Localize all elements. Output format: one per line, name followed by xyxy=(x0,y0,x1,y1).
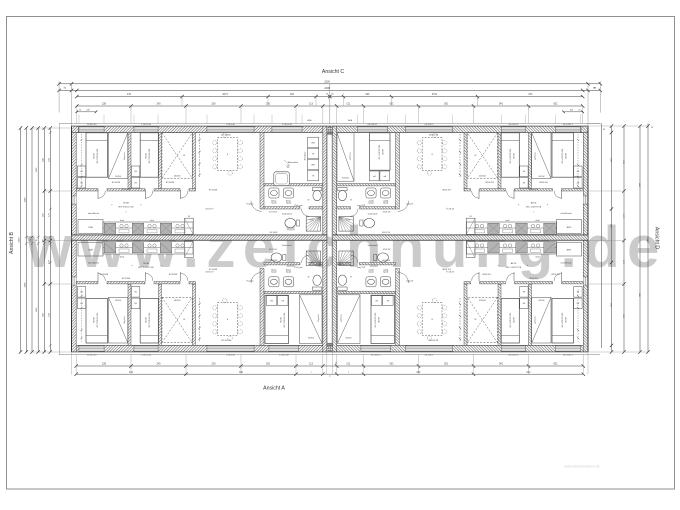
svg-text:1.135/1.40: 1.135/1.40 xyxy=(87,124,98,126)
svg-text:Essplatz: Essplatz xyxy=(406,203,413,206)
svg-text:BOTTICELLI 590: BOTTICELLI 590 xyxy=(149,149,151,164)
svg-text:BOTTICELLI 590: BOTTICELLI 590 xyxy=(374,313,376,328)
svg-text:113: 113 xyxy=(346,103,350,106)
svg-text:26.81 m²: 26.81 m² xyxy=(206,271,214,274)
svg-text:Spüle: Spüle xyxy=(535,256,539,258)
svg-text:240: 240 xyxy=(157,363,162,366)
svg-text:200: 200 xyxy=(266,363,271,366)
svg-text:Spüle: Spüle xyxy=(120,256,124,258)
svg-text:90/200: 90/200 xyxy=(346,338,352,340)
svg-text:Spüle: Spüle xyxy=(120,220,124,222)
svg-text:NOVA: NOVA xyxy=(93,153,96,159)
svg-text:EX 30/48: EX 30/48 xyxy=(270,232,277,234)
svg-text:140/200: 140/200 xyxy=(479,176,486,178)
svg-text:Spiegel: Spiegel xyxy=(368,272,374,274)
svg-text:90/200: 90/200 xyxy=(115,300,121,302)
svg-text:50: 50 xyxy=(651,127,653,129)
svg-text:1073: 1073 xyxy=(431,93,437,96)
svg-text:1125: 1125 xyxy=(36,307,38,312)
svg-text:2208: 2208 xyxy=(324,87,330,90)
svg-text:90/200: 90/200 xyxy=(308,338,314,340)
svg-text:90/200: 90/200 xyxy=(115,176,121,178)
svg-text:EX 30/48: EX 30/48 xyxy=(529,278,538,280)
svg-text:1.135/1.40: 1.135/1.40 xyxy=(367,124,378,126)
svg-text:140/200: 140/200 xyxy=(342,178,349,180)
svg-text:90/90: 90/90 xyxy=(309,262,314,264)
svg-text:EX 30/56: EX 30/56 xyxy=(383,249,390,251)
svg-text:20: 20 xyxy=(335,363,337,365)
svg-text:140/200: 140/200 xyxy=(479,300,486,302)
svg-text:240: 240 xyxy=(498,363,503,366)
svg-text:PVC grau: PVC grau xyxy=(294,204,302,207)
svg-text:BOTTICELLI 590: BOTTICELLI 590 xyxy=(509,313,511,328)
svg-text:1073: 1073 xyxy=(222,93,228,96)
svg-text:50: 50 xyxy=(79,110,81,112)
svg-text:18: 18 xyxy=(475,319,477,321)
svg-text:EX 80/58: EX 80/58 xyxy=(485,182,494,184)
svg-text:2.26/1.40: 2.26/1.40 xyxy=(424,355,434,357)
svg-text:1.135/1.40: 1.135/1.40 xyxy=(562,124,573,126)
svg-text:228: 228 xyxy=(86,110,89,112)
svg-text:200: 200 xyxy=(443,363,448,366)
svg-text:2WB: 2WB xyxy=(88,227,93,229)
svg-text:390: 390 xyxy=(239,371,244,374)
svg-text:26.81 m²: 26.81 m² xyxy=(446,271,454,274)
svg-text:Spiegel: Spiegel xyxy=(271,272,277,274)
svg-text:EX 40/196: EX 40/196 xyxy=(428,340,438,342)
svg-text:1080: 1080 xyxy=(24,197,26,203)
svg-text:www.zeichenaktion.de: www.zeichenaktion.de xyxy=(564,465,600,469)
svg-text:NOVA: NOVA xyxy=(564,317,567,323)
svg-text:BOTTICELLI 590: BOTTICELLI 590 xyxy=(284,313,286,328)
svg-text:2.26/1.40: 2.26/1.40 xyxy=(226,355,236,357)
svg-text:EX 80/58: EX 80/58 xyxy=(169,274,178,276)
svg-text:36: 36 xyxy=(331,94,333,96)
svg-text:PVC grau: PVC grau xyxy=(294,266,302,269)
svg-text:EX 30/48: EX 30/48 xyxy=(442,269,451,271)
svg-text:BOTTICELLI 590: BOTTICELLI 590 xyxy=(561,313,563,328)
svg-text:Spiegel: Spiegel xyxy=(286,202,292,204)
svg-text:BOTTICELLI 590: BOTTICELLI 590 xyxy=(378,145,380,160)
svg-text:200: 200 xyxy=(443,103,448,106)
svg-text:EX 30/48: EX 30/48 xyxy=(122,189,131,191)
svg-text:Klappbett: Klappbett xyxy=(534,316,537,324)
svg-text:Spüle: Spüle xyxy=(535,220,539,222)
svg-text:7: 7 xyxy=(533,212,534,214)
svg-text:26.81 m²: 26.81 m² xyxy=(446,208,454,211)
svg-text:abstellfläche: abstellfläche xyxy=(88,212,100,215)
svg-text:1.135/1.40: 1.135/1.40 xyxy=(508,124,519,126)
svg-text:NOVA: NOVA xyxy=(93,317,96,323)
svg-text:1125: 1125 xyxy=(36,167,38,172)
svg-text:140/200: 140/200 xyxy=(174,176,181,178)
svg-text:470: 470 xyxy=(127,93,132,96)
svg-text:240: 240 xyxy=(157,103,162,106)
svg-text:Herd: Herd xyxy=(150,219,154,222)
svg-text:228: 228 xyxy=(570,110,573,112)
svg-text:Klappbett: Klappbett xyxy=(349,152,352,160)
svg-text:Bodenablauf: Bodenablauf xyxy=(367,214,377,216)
svg-text:240: 240 xyxy=(498,103,503,106)
svg-text:Klappbett: Klappbett xyxy=(534,152,537,160)
svg-text:18: 18 xyxy=(475,155,477,157)
svg-text:2240: 2240 xyxy=(646,238,648,244)
svg-text:18: 18 xyxy=(183,319,185,321)
svg-text:90/200: 90/200 xyxy=(539,300,545,302)
svg-text:410: 410 xyxy=(526,371,531,374)
svg-text:NOVA: NOVA xyxy=(377,317,380,323)
svg-text:NOVA: NOVA xyxy=(530,202,536,205)
svg-text:EX 40/196: EX 40/196 xyxy=(221,340,231,342)
svg-text:140/200: 140/200 xyxy=(174,300,181,302)
svg-text:NOVA: NOVA xyxy=(123,202,129,205)
svg-text:1.135/1.40: 1.135/1.40 xyxy=(562,355,573,357)
svg-text:320: 320 xyxy=(365,93,370,96)
svg-text:2238: 2238 xyxy=(324,81,330,84)
svg-text:2WB: 2WB xyxy=(566,227,571,229)
svg-text:1.135/1.40: 1.135/1.40 xyxy=(508,355,519,357)
svg-text:Spiegel: Spiegel xyxy=(368,202,374,204)
svg-text:7: 7 xyxy=(343,94,344,96)
svg-text:abstellfläche: abstellfläche xyxy=(560,212,572,215)
svg-text:EX 30/48: EX 30/48 xyxy=(270,260,277,262)
svg-text:EX 80/58: EX 80/58 xyxy=(482,274,491,276)
svg-text:PVC grau: PVC grau xyxy=(357,204,365,207)
svg-text:200: 200 xyxy=(212,103,217,106)
svg-text:EX 30/48: EX 30/48 xyxy=(209,269,218,271)
svg-text:Bodenablauf: Bodenablauf xyxy=(367,245,377,247)
svg-text:228: 228 xyxy=(553,103,558,106)
svg-text:Klappbett: Klappbett xyxy=(317,314,320,322)
svg-text:Klappbett: Klappbett xyxy=(123,316,126,324)
svg-text:18: 18 xyxy=(183,155,185,157)
svg-text:Klappbett: Klappbett xyxy=(123,152,126,160)
svg-text:Spiegel: Spiegel xyxy=(286,272,292,274)
svg-text:470: 470 xyxy=(528,93,533,96)
svg-text:BOTTICELLI 590: BOTTICELLI 590 xyxy=(97,313,99,328)
svg-text:7: 7 xyxy=(329,376,330,378)
svg-text:Ansicht D: Ansicht D xyxy=(654,227,660,249)
svg-text:2.26/1.40: 2.26/1.40 xyxy=(226,124,236,126)
svg-text:WM: WM xyxy=(311,165,315,167)
svg-text:EX 30/56: EX 30/56 xyxy=(383,211,390,213)
svg-text:1.135/1.40: 1.135/1.40 xyxy=(141,124,152,126)
svg-text:Bodenablauf: Bodenablauf xyxy=(288,162,299,164)
svg-text:EX 30/48: EX 30/48 xyxy=(122,278,131,280)
svg-text:BOTTICELLI 590: BOTTICELLI 590 xyxy=(509,149,511,164)
svg-text:113: 113 xyxy=(346,363,350,366)
svg-text:NOVA: NOVA xyxy=(510,262,516,265)
svg-text:228: 228 xyxy=(102,363,107,366)
svg-text:BOTTICELLI 590: BOTTICELLI 590 xyxy=(505,267,521,269)
svg-text:1080: 1080 xyxy=(24,282,26,288)
svg-text:BOTTICELLI 590: BOTTICELLI 590 xyxy=(525,207,541,209)
svg-text:EX 30/56: EX 30/56 xyxy=(269,249,276,251)
svg-text:113: 113 xyxy=(309,103,313,106)
svg-text:EX 30/48: EX 30/48 xyxy=(382,232,389,234)
svg-text:200: 200 xyxy=(266,103,271,106)
svg-text:Essplatz: Essplatz xyxy=(406,280,413,283)
svg-text:WM: WM xyxy=(311,143,315,145)
svg-text:EX 30/56: EX 30/56 xyxy=(269,211,276,213)
svg-text:390: 390 xyxy=(416,371,421,374)
svg-text:90: 90 xyxy=(42,239,44,241)
svg-text:Klappbett: Klappbett xyxy=(340,314,343,322)
svg-text:EX 30/48: EX 30/48 xyxy=(442,190,451,192)
svg-text:Bodenablauf: Bodenablauf xyxy=(282,214,292,216)
svg-text:7: 7 xyxy=(126,212,127,214)
svg-text:BOTTICELLI 590: BOTTICELLI 590 xyxy=(149,313,151,328)
svg-text:abstellfläche: abstellfläche xyxy=(88,262,100,265)
svg-text:EX 30/48: EX 30/48 xyxy=(529,189,538,191)
svg-text:200: 200 xyxy=(212,363,217,366)
svg-text:90/90: 90/90 xyxy=(346,219,351,221)
svg-text:Abstellplatz: Abstellplatz xyxy=(303,152,306,161)
svg-text:Spiegel: Spiegel xyxy=(271,202,277,204)
svg-text:NOVA: NOVA xyxy=(145,153,148,159)
svg-text:EX 80/58: EX 80/58 xyxy=(166,182,175,184)
svg-text:BOTTICELLI 590: BOTTICELLI 590 xyxy=(97,149,99,164)
svg-text:36: 36 xyxy=(326,94,328,96)
svg-text:NOVA: NOVA xyxy=(145,317,148,323)
svg-text:Spiegel: Spiegel xyxy=(382,272,388,274)
svg-text:200: 200 xyxy=(389,103,394,106)
svg-text:EX 30/48: EX 30/48 xyxy=(209,190,218,192)
svg-text:BOTTICELLI 590: BOTTICELLI 590 xyxy=(118,207,134,209)
svg-text:EX 80/58: EX 80/58 xyxy=(112,182,121,184)
svg-text:Spiegel: Spiegel xyxy=(382,202,388,204)
svg-text:NOVA: NOVA xyxy=(280,317,283,323)
svg-text:2430: 2430 xyxy=(19,237,21,243)
svg-text:BOTTICELLI 590: BOTTICELLI 590 xyxy=(561,149,563,164)
svg-text:228: 228 xyxy=(553,363,558,366)
svg-text:1.135/1.40: 1.135/1.40 xyxy=(141,355,152,357)
svg-text:NOVA: NOVA xyxy=(143,262,149,265)
svg-text:2WB: 2WB xyxy=(88,250,93,252)
svg-text:50: 50 xyxy=(578,110,580,112)
svg-text:7: 7 xyxy=(348,372,349,374)
svg-text:Ansicht C: Ansicht C xyxy=(322,69,344,75)
svg-text:Ansicht B: Ansicht B xyxy=(9,232,15,254)
svg-text:320: 320 xyxy=(290,93,295,96)
svg-text:90/90: 90/90 xyxy=(309,219,314,221)
svg-text:113: 113 xyxy=(309,363,313,366)
svg-text:Ansicht A: Ansicht A xyxy=(263,386,285,392)
svg-text:NOVA: NOVA xyxy=(564,153,567,159)
svg-text:NOVA: NOVA xyxy=(512,153,515,159)
svg-text:228: 228 xyxy=(102,103,107,106)
svg-text:90/90: 90/90 xyxy=(346,262,351,264)
svg-text:1.135/1.40: 1.135/1.40 xyxy=(282,124,293,126)
svg-text:410: 410 xyxy=(129,371,134,374)
svg-text:Essplatz: Essplatz xyxy=(247,280,254,283)
svg-text:EX 30/48: EX 30/48 xyxy=(382,260,389,262)
svg-text:1.135/1.40: 1.135/1.40 xyxy=(87,355,98,357)
svg-text:90/200: 90/200 xyxy=(539,176,545,178)
svg-text:2240: 2240 xyxy=(30,237,32,243)
svg-text:BOTTICELLI 590: BOTTICELLI 590 xyxy=(138,267,154,269)
svg-text:36: 36 xyxy=(36,239,38,241)
svg-text:30: 30 xyxy=(603,129,605,131)
svg-text:PVC grau: PVC grau xyxy=(357,266,365,269)
svg-text:Bodenablauf: Bodenablauf xyxy=(282,245,292,247)
svg-text:NOVA: NOVA xyxy=(381,149,384,155)
svg-text:abstellfläche: abstellfläche xyxy=(560,262,572,265)
svg-text:NOVA: NOVA xyxy=(512,317,515,323)
svg-text:2.26/1.40: 2.26/1.40 xyxy=(424,124,434,126)
svg-text:1.135/1.40: 1.135/1.40 xyxy=(279,355,290,357)
svg-text:EX 80/58: EX 80/58 xyxy=(539,182,548,184)
svg-text:7: 7 xyxy=(316,94,317,96)
svg-text:7: 7 xyxy=(310,372,311,374)
svg-text:Essplatz: Essplatz xyxy=(247,203,254,206)
svg-text:1.135/1.40: 1.135/1.40 xyxy=(370,355,381,357)
svg-text:2WB: 2WB xyxy=(566,250,571,252)
svg-text:200: 200 xyxy=(389,363,394,366)
svg-text:26.81 m²: 26.81 m² xyxy=(206,208,214,211)
svg-text:Herd: Herd xyxy=(506,219,510,222)
